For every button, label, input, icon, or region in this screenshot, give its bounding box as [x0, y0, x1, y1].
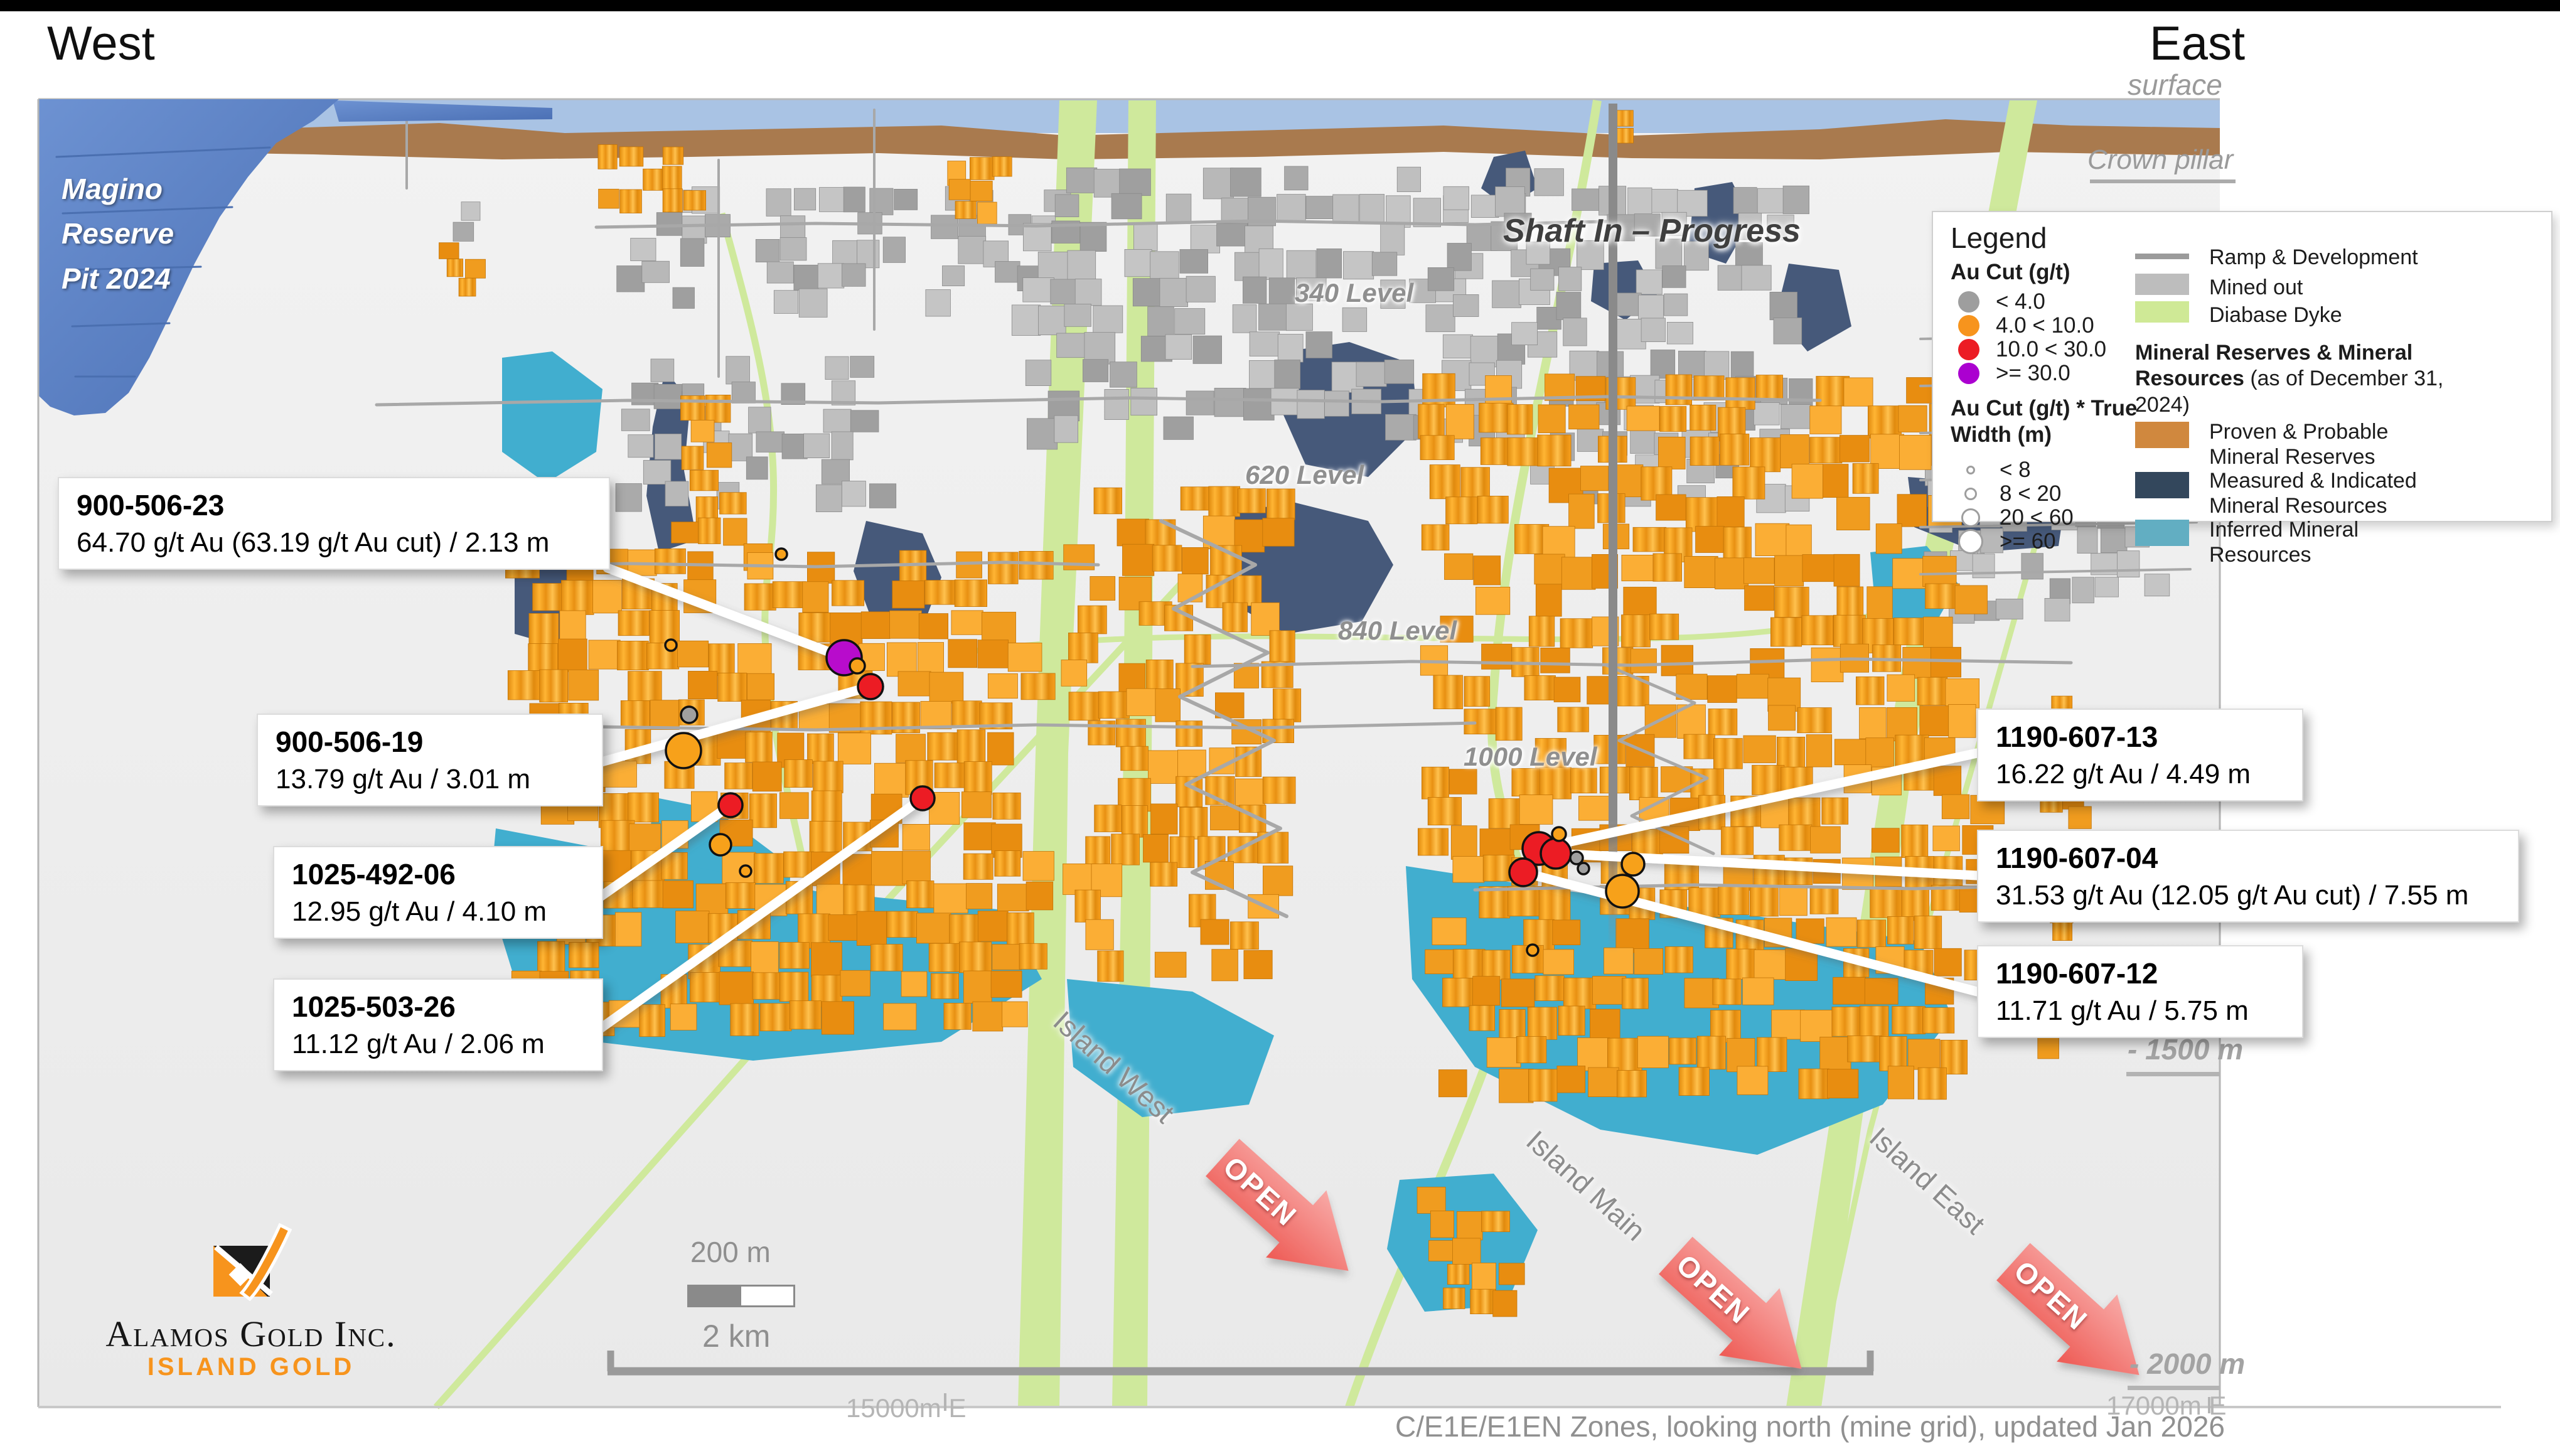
legend-width-heading: Au Cut (g/t) * True Width (m)	[1951, 395, 2139, 448]
au-class-label: < 4.0	[1996, 289, 2045, 314]
level-label-840: 840 Level	[1338, 616, 1457, 646]
width-class-circle	[1961, 508, 1980, 527]
au-class-dot	[1958, 291, 1979, 313]
proven-probable-label: Proven & Probable Mineral Reserves	[2209, 419, 2416, 469]
hole-id: 1190-607-04	[1996, 841, 2500, 875]
hole-id: 1190-607-13	[1996, 720, 2284, 754]
mined-out-label: Mined out	[2209, 275, 2303, 300]
callout-1025-503-26: 1025-503-26 11.12 g/t Au / 2.06 m	[273, 978, 603, 1071]
crown-pillar-label: Crown pillar	[2087, 144, 2233, 176]
surface-label: surface	[2128, 68, 2222, 102]
depth-line-2000	[2128, 1386, 2220, 1390]
pit-label-line3: Pit 2024	[62, 257, 174, 301]
alamos-logo-mark	[207, 1219, 314, 1313]
callout-900-506-23: 900-506-23 64.70 g/t Au (63.19 g/t Au cu…	[58, 477, 610, 570]
logo-company-name: Alamos Gold Inc.	[94, 1313, 408, 1355]
callout-900-506-19: 900-506-19 13.79 g/t Au / 3.01 m	[257, 714, 603, 806]
inferred-label: Inferred Mineral Resources	[2209, 517, 2372, 567]
pit-label-line2: Reserve	[62, 211, 174, 256]
legend-width-row: 8 < 20	[1958, 482, 2061, 506]
crown-pillar-underline	[2090, 179, 2236, 183]
width-class-label: 20 < 60	[2000, 505, 2074, 530]
magino-pit-label: Magino Reserve Pit 2024	[62, 167, 174, 301]
hole-id: 900-506-23	[77, 488, 591, 522]
width-class-label: < 8	[2000, 458, 2031, 483]
au-class-dot	[1958, 339, 1979, 360]
width-class-circle	[1958, 529, 1983, 554]
level-label-620: 620 Level	[1245, 460, 1364, 490]
scale-200m-bar-fill	[689, 1287, 741, 1305]
level-label-1000: 1000 Level	[1464, 742, 1597, 772]
callout-1190-607-12: 1190-607-12 11.71 g/t Au / 5.75 m	[1977, 945, 2303, 1038]
hole-result: 64.70 g/t Au (63.19 g/t Au cut) / 2.13 m	[77, 527, 591, 559]
diabase-dyke-label: Diabase Dyke	[2209, 302, 2342, 328]
au-class-label: 10.0 < 30.0	[1996, 337, 2106, 362]
hole-result: 12.95 g/t Au / 4.10 m	[292, 896, 584, 928]
legend-au-heading: Au Cut (g/t)	[1951, 260, 2070, 285]
legend-au-row: >= 30.0	[1958, 361, 2070, 385]
au-class-label: 4.0 < 10.0	[1996, 313, 2094, 338]
hole-result: 11.12 g/t Au / 2.06 m	[292, 1029, 584, 1060]
legend-au-row: 10.0 < 30.0	[1958, 338, 2106, 361]
hole-result: 31.53 g/t Au (12.05 g/t Au cut) / 7.55 m	[1996, 880, 2500, 911]
inferred-swatch	[2135, 520, 2189, 546]
proven-probable-swatch	[2135, 422, 2189, 448]
hole-id: 1025-492-06	[292, 857, 584, 891]
logo-division-name: ISLAND GOLD	[94, 1353, 408, 1381]
depth-marker-2000: - 2000 m	[2129, 1347, 2245, 1381]
width-class-circle	[1966, 466, 1975, 474]
depth-line-1500	[2126, 1072, 2220, 1076]
letterbox-top	[0, 0, 2560, 11]
easting-15000: 15000m E	[846, 1393, 966, 1423]
legend-width-row: < 8	[1958, 458, 2031, 482]
scale-2km-label: 2 km	[702, 1318, 770, 1354]
measured-indicated-label: Measured & Indicated Mineral Resources	[2209, 468, 2423, 518]
hole-result: 16.22 g/t Au / 4.49 m	[1996, 759, 2284, 790]
callout-1025-492-06: 1025-492-06 12.95 g/t Au / 4.10 m	[273, 846, 603, 939]
section-caption: C/E1E/E1EN Zones, looking north (mine gr…	[1395, 1410, 2225, 1443]
ramp-development-label: Ramp & Development	[2209, 245, 2418, 270]
legend-width-row: 20 < 60	[1958, 506, 2074, 530]
measured-indicated-swatch	[2135, 472, 2189, 498]
scale-200m-label: 200 m	[690, 1235, 771, 1269]
hole-id: 1190-607-12	[1996, 956, 2284, 990]
mined-out-swatch	[2135, 274, 2189, 295]
callout-1190-607-13: 1190-607-13 16.22 g/t Au / 4.49 m	[1977, 709, 2303, 801]
hole-id: 1025-503-26	[292, 990, 584, 1024]
au-class-dot	[1958, 315, 1979, 336]
resources-heading: Mineral Reserves & Mineral Resources (as…	[2135, 340, 2496, 418]
ramp-development-swatch	[2135, 254, 2189, 259]
legend-au-row: < 4.0	[1958, 290, 2045, 314]
level-label-340: 340 Level	[1295, 278, 1413, 308]
shaft-label: Shaft In – Progress	[1503, 212, 1801, 250]
legend-au-row: 4.0 < 10.0	[1958, 314, 2094, 338]
west-label: West	[47, 16, 155, 71]
legend-width-row: >= 60	[1958, 530, 2056, 554]
scale-200m-bar	[687, 1285, 795, 1307]
legend-title: Legend	[1951, 221, 2047, 255]
width-class-circle	[1964, 488, 1977, 500]
east-label: East	[2150, 16, 2245, 71]
hole-result: 11.71 g/t Au / 5.75 m	[1996, 995, 2284, 1027]
au-class-dot	[1958, 363, 1979, 384]
width-class-label: 8 < 20	[2000, 481, 2061, 506]
pit-label-line1: Magino	[62, 167, 174, 211]
width-class-label: >= 60	[2000, 529, 2056, 554]
callout-1190-607-04: 1190-607-04 31.53 g/t Au (12.05 g/t Au c…	[1977, 830, 2519, 923]
au-class-label: >= 30.0	[1996, 361, 2070, 386]
mine-longitudinal-section: West East surface Crown pillar Magino Re…	[0, 0, 2560, 1456]
hole-result: 13.79 g/t Au / 3.01 m	[276, 764, 584, 795]
hole-id: 900-506-19	[276, 725, 584, 759]
legend-panel: Legend Au Cut (g/t) < 4.0 4.0 < 10.0 10.…	[1932, 211, 2552, 522]
diabase-dyke-swatch	[2135, 301, 2189, 323]
